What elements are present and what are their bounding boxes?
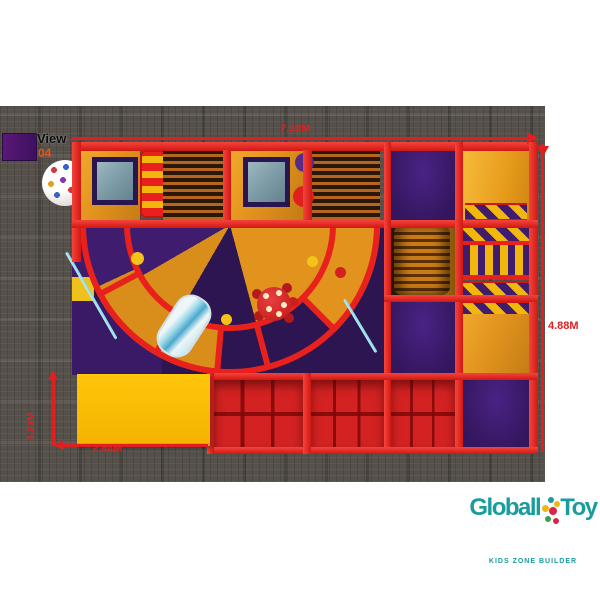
- fan-outer-ring: [80, 227, 380, 375]
- view-number: 04: [38, 146, 51, 160]
- ball-pit: [391, 380, 455, 447]
- turtle-toy: [252, 283, 298, 329]
- fan-outer-disc: [80, 227, 380, 375]
- play-ball: [221, 314, 232, 325]
- soft-play-cell: [390, 302, 455, 374]
- arrow-up-icon: [48, 370, 58, 380]
- slide-landing-cell: [463, 314, 530, 374]
- dimension-line-mat-width: [52, 378, 55, 446]
- brand-logo: Globall Toy KIDS ZONE BUILDER: [468, 496, 598, 565]
- play-ball: [307, 256, 318, 267]
- brand-name-left: Globall: [469, 496, 540, 520]
- window-panel: [92, 157, 138, 205]
- arrow-down-icon: [537, 146, 549, 157]
- arrow-right-icon: [527, 132, 538, 144]
- ball-pit: [214, 380, 303, 447]
- dimension-mat-width-label: 1.22M: [26, 380, 37, 440]
- rib-crossing: [463, 241, 530, 279]
- soft-play-cell: [390, 150, 455, 220]
- arrow-left-icon: [54, 440, 64, 450]
- dimension-depth-label: 4.88M: [548, 320, 579, 332]
- fan-wedge-platform: [80, 227, 380, 375]
- dimension-line-mat-length: [56, 444, 208, 447]
- view-color-swatch: [2, 133, 37, 161]
- playground-plan-render: View 04: [0, 0, 600, 600]
- frame-divider: [303, 150, 312, 220]
- window-panel: [243, 157, 290, 207]
- dimension-width-label: 7.32M: [280, 123, 311, 135]
- frame-bottom: [207, 447, 538, 454]
- brand-name-right: Toy: [560, 496, 596, 520]
- roller-cylinder: [394, 225, 450, 295]
- dimension-mat-length-label: 2.44M: [92, 443, 123, 455]
- frame-row2: [384, 295, 538, 302]
- play-ball: [131, 252, 144, 265]
- brand-tagline: KIDS ZONE BUILDER: [468, 558, 598, 565]
- frame-left: [72, 142, 81, 262]
- balloon-cluster-icon: [541, 496, 559, 532]
- dimension-line-depth: [541, 144, 544, 452]
- view-label: View: [37, 131, 66, 146]
- ball-pit: [311, 380, 384, 447]
- roller-bridge: [312, 150, 380, 220]
- hazard-step: [465, 203, 527, 221]
- soft-play-cell: [463, 380, 530, 447]
- dimension-line-width: [72, 137, 530, 140]
- frame-divider: [303, 373, 311, 454]
- frame-row1: [72, 220, 538, 228]
- landing-mat: [77, 374, 210, 446]
- frame-pit-top: [207, 373, 538, 380]
- play-ball: [335, 267, 346, 278]
- frame-divider: [223, 150, 231, 220]
- roller-bridge: [163, 150, 223, 220]
